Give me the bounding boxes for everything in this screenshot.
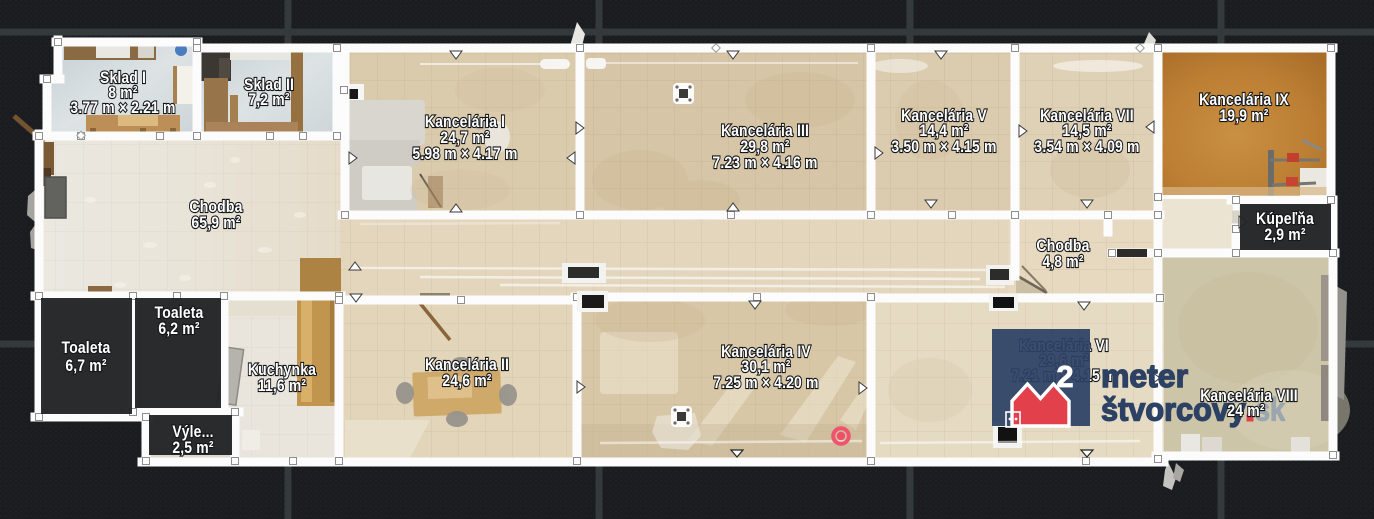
svg-text:7,2 m²: 7,2 m² bbox=[248, 90, 289, 109]
svg-text:Toaleta: Toaleta bbox=[62, 338, 111, 357]
svg-text:2: 2 bbox=[1056, 359, 1073, 394]
svg-text:6,2 m²: 6,2 m² bbox=[158, 319, 199, 338]
svg-text:65,9 m²: 65,9 m² bbox=[191, 213, 240, 232]
svg-text:3.54 m × 4.09 m: 3.54 m × 4.09 m bbox=[1034, 137, 1139, 156]
svg-text:7.23 m × 4.16 m: 7.23 m × 4.16 m bbox=[712, 153, 817, 172]
svg-text:24,6 m²: 24,6 m² bbox=[442, 371, 491, 390]
svg-text:7.25 m × 4.20 m: 7.25 m × 4.20 m bbox=[713, 373, 818, 392]
svg-text:2,5 m²: 2,5 m² bbox=[172, 438, 213, 457]
svg-text:6,7 m²: 6,7 m² bbox=[65, 356, 106, 375]
svg-text:3.50 m × 4.15 m: 3.50 m × 4.15 m bbox=[891, 137, 996, 156]
svg-text:11,6 m²: 11,6 m² bbox=[258, 376, 307, 395]
svg-text:5.98 m × 4.17 m: 5.98 m × 4.17 m bbox=[412, 144, 517, 163]
svg-text:24 m²: 24 m² bbox=[1227, 401, 1264, 420]
svg-text:2,9 m²: 2,9 m² bbox=[1264, 225, 1305, 244]
svg-text:19,9 m²: 19,9 m² bbox=[1219, 106, 1268, 125]
svg-text:meter: meter bbox=[1101, 358, 1188, 394]
svg-text:3.77 m × 2.21 m: 3.77 m × 2.21 m bbox=[70, 98, 175, 117]
svg-text:4,8 m²: 4,8 m² bbox=[1042, 252, 1083, 271]
